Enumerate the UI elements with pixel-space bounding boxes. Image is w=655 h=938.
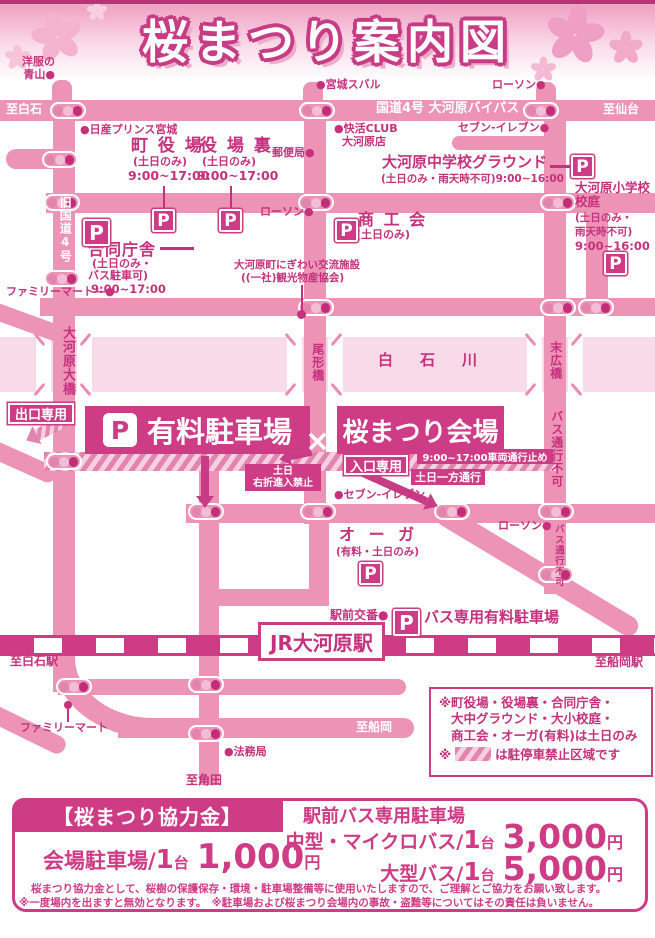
traffic-signal-icon — [188, 676, 224, 693]
bridge-ogata: 尾形橋 — [310, 343, 324, 393]
parking-godo-hours: 9:00~17:00 — [91, 283, 166, 296]
poi-kaikatsu-line2: 大河原店 — [342, 135, 386, 148]
per-count: 1 — [156, 845, 174, 875]
parking-icon: P — [83, 219, 110, 246]
poi-seven-low: ●セブン-イレブン — [334, 489, 425, 502]
traffic-signal-icon — [56, 678, 92, 695]
parking-elementary-line2: 校庭 — [575, 194, 600, 209]
poi-seven-top: セブン-イレブン● — [458, 122, 549, 135]
traffic-signal-icon — [300, 503, 336, 520]
festival-venue-label: 桜まつり会場 — [342, 412, 498, 449]
connector-line — [163, 186, 165, 208]
traffic-signal-icon — [578, 299, 614, 316]
closed-crossing-mark: × — [305, 424, 330, 459]
traffic-signal-icon — [42, 151, 78, 168]
no-parking-hatch-swatch — [455, 747, 491, 761]
parking-townhall-days: (土日のみ) — [133, 156, 187, 169]
poi-kaikatsu-line1: ●快活CLUB — [334, 122, 398, 135]
parking-elementary-line1: 大河原小学校 — [575, 180, 650, 195]
poi-post-office: 郵便局● — [272, 147, 315, 160]
paid-parking-banner: P 有料駐車場 — [85, 406, 310, 454]
traffic-signal-icon — [538, 503, 574, 520]
parking-behind-days: (土日のみ) — [202, 156, 256, 169]
parking-icon: P — [571, 155, 594, 178]
parking-jhs-ground-note: (土日のみ・雨天時不可)9:00~16:00 — [381, 173, 564, 185]
venue-parking-fee: 会場駐車場/1台1,000円 — [43, 837, 320, 877]
yen: 円 — [607, 861, 623, 885]
poi-nissan: ●日産プリンス宮城 — [80, 124, 177, 137]
notes-line1: ※町役場・役場裏・合同庁舎・ — [439, 695, 643, 711]
notes-line4-prefix: ※ — [439, 747, 451, 762]
poi-lawson-mid: ローソン● — [260, 206, 314, 219]
road-cross-mid — [199, 589, 329, 606]
per-unit: 台 — [174, 852, 189, 873]
direction-funaoka-station: 至船岡駅 — [595, 656, 643, 670]
traffic-signal-icon — [434, 503, 470, 520]
parking-icon: P — [219, 209, 242, 232]
parking-icon: P — [335, 219, 358, 242]
slash: / — [148, 849, 156, 873]
parking-elementary: 大河原小学校 校庭 (土日のみ・ 雨天時不可) 9:00~16:00 — [575, 181, 650, 253]
parking-icon: P — [604, 252, 627, 275]
parking-elementary-line4: 雨天時不可) — [575, 226, 632, 238]
traffic-signal-icon — [188, 725, 224, 742]
parking-icon: P — [103, 413, 137, 447]
venue-fee-label: 会場駐車場 — [43, 845, 148, 875]
direction-shiroishi-station: 至白石駅 — [10, 655, 58, 669]
parking-icon: P — [359, 562, 382, 585]
parking-bus-name: バス専用有料駐車場 — [424, 609, 559, 626]
parking-oga-name: オ ー ガ — [339, 526, 418, 544]
poi-kaikatsu: ●快活CLUB大河原店 — [334, 123, 398, 148]
one-way-label: 土日一方通行 — [411, 469, 485, 485]
down-arrow-icon — [201, 456, 209, 508]
poi-subaru: ●宮城スバル — [316, 79, 381, 92]
parking-shokokai-name: 商 工 会 — [358, 211, 427, 229]
fee-note-1: 桜まつり協力金として、桜樹の保護保存・環境・駐車場整備等に使用いたしますので、ご… — [31, 881, 606, 896]
no-right-turn-line2: 右折進入禁止 — [253, 478, 313, 490]
parking-shokokai-days: (土日のみ) — [356, 229, 410, 242]
notes-line4-text: は駐停車禁止区域です — [495, 747, 620, 762]
direction-shiroishi: 至白石 — [6, 103, 42, 116]
connector-line — [550, 165, 570, 168]
poi-lawson-top: ローソン● — [492, 79, 546, 92]
parking-oga-days: (有料・土日のみ) — [336, 546, 419, 558]
parking-behind-name: 役 場 裏 — [200, 137, 273, 157]
parking-behind-hours: 9:00~17:00 — [197, 169, 278, 183]
nigiwai-facility-line2: ((一社)観光物産協会) — [241, 272, 344, 284]
nigiwai-facility-line1: 大河原町にぎわい交流施設 — [234, 259, 360, 271]
parking-godo-days2: バス駐車可) — [88, 270, 148, 283]
notes-line4: ※は駐停車禁止区域です — [439, 747, 643, 763]
fee-panel-header: 【桜まつり協力金】 — [12, 798, 283, 832]
traffic-signal-icon — [46, 453, 82, 470]
road-name-old-route4: 旧国道4号 — [58, 196, 71, 276]
poi-dot — [297, 310, 306, 319]
exit-only-label: 出口専用 — [8, 403, 74, 424]
notes-line3: 商工会・オーガ(有料)は土日のみ — [451, 728, 643, 744]
sakura-festival-map: 桜まつり案内図 — [0, 0, 655, 938]
connector-line — [230, 186, 232, 208]
traffic-signal-icon — [299, 102, 335, 119]
bus-not-allowed-label: バス通行不可 — [552, 524, 563, 586]
traffic-signal-icon — [50, 102, 86, 119]
poi-dot — [64, 701, 72, 709]
poi-koban: 駅前交番● — [330, 609, 388, 623]
top-border-line — [0, 0, 655, 4]
parking-elementary-line5: 9:00~16:00 — [575, 239, 650, 253]
parking-icon: P — [393, 609, 420, 636]
poi-homukyoku: ●法務局 — [224, 746, 267, 759]
no-right-turn-line1: 土日 — [273, 466, 293, 478]
river-name: 白 石 川 — [378, 352, 483, 369]
paid-parking-label: 有料駐車場 — [147, 409, 292, 451]
parking-jhs-ground-name: 大河原中学校グラウンド — [382, 154, 547, 171]
notes-line2: 大中グラウンド・大小校庭・ — [451, 711, 643, 727]
no-right-turn-label: 土日 右折進入禁止 — [245, 464, 321, 491]
road-closed-hours-label: 9:00~17:00車両通行止め — [417, 449, 553, 464]
festival-venue-banner: 桜まつり会場 — [337, 406, 504, 454]
entrance-only-label: 入口専用 — [344, 455, 408, 475]
direction-funaoka: 至船岡 — [356, 721, 392, 734]
road-station-front — [186, 504, 655, 523]
page-title: 桜まつり案内図 — [0, 6, 655, 72]
jr-station-label: JR大河原駅 — [258, 622, 385, 661]
notes-box: ※町役場・役場裏・合同庁舎・ 大中グラウンド・大小校庭・ 商工会・オーガ(有料)… — [429, 687, 653, 777]
traffic-signal-icon — [540, 299, 576, 316]
parking-icon: P — [152, 209, 175, 232]
poi-lawson-low: ローソン● — [498, 520, 552, 533]
parking-townhall-name: 町 役 場 — [131, 137, 204, 157]
traffic-signal-icon — [540, 194, 576, 211]
direction-sendai: 至仙台 — [603, 103, 639, 116]
bridge-suehiro: 末広橋 — [548, 341, 562, 391]
connector-line — [160, 247, 194, 250]
poi-famima-low: ファミリーマート — [20, 722, 108, 735]
fee-note-2: ※一度場内を出ますと無効となります。 ※駐車場および桜まつり会場内の事故・盗難等… — [19, 895, 599, 910]
traffic-signal-icon — [523, 102, 559, 119]
road-name-route4: 国道4号 大河原バイパス — [376, 102, 519, 116]
road-stub — [52, 80, 72, 102]
fee-panel: 【桜まつり協力金】 会場駐車場/1台1,000円 駅前バス専用駐車場 中型・マイ… — [12, 798, 648, 912]
connector-line — [301, 285, 303, 311]
direction-kakuda: 至角田 — [186, 774, 222, 788]
parking-elementary-line3: (土日のみ・ — [575, 212, 632, 224]
road-seven-stub — [452, 136, 550, 150]
